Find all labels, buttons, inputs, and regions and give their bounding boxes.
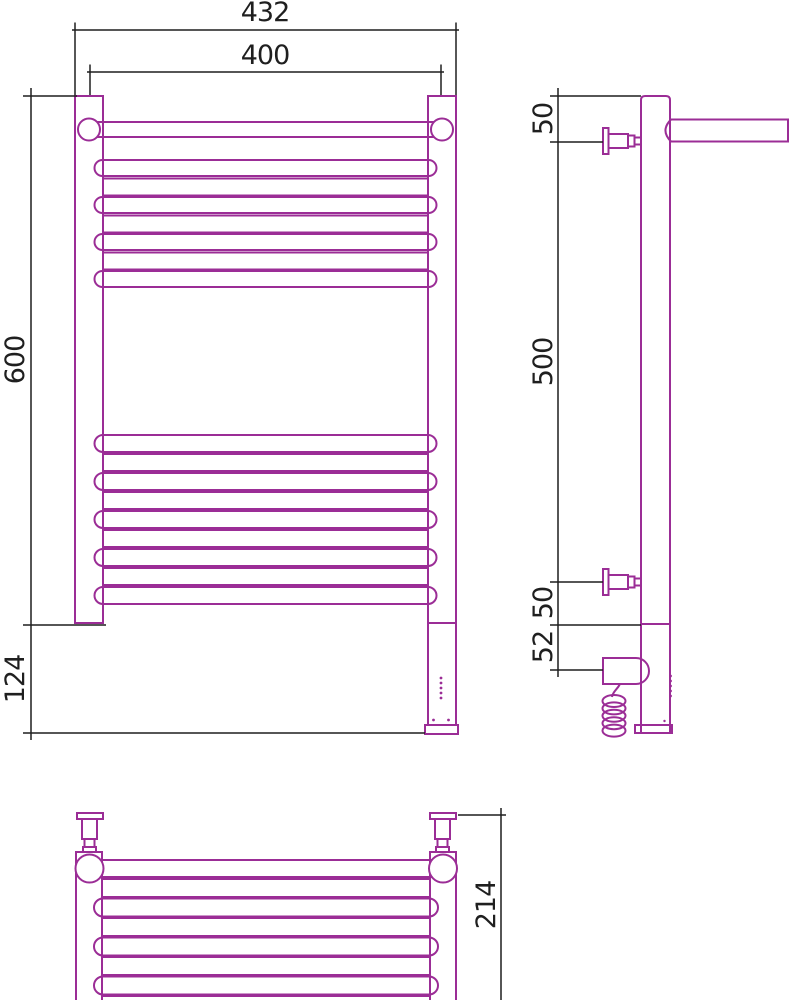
indicator-dot [440, 697, 443, 700]
side-view: 50 500 50 52 [528, 88, 788, 737]
mounting-fitting-circle [429, 855, 457, 883]
indicator-dot [669, 675, 672, 678]
bracket-neck [85, 839, 95, 847]
dim-label-heater-extension: 124 [0, 655, 31, 704]
heater-end-cap [425, 725, 458, 734]
wall-bracket-top-icon [430, 813, 456, 852]
technical-drawing: 432 400 600 124 [0, 0, 794, 1000]
crossbar-tube-front [95, 511, 437, 528]
bracket-screw [635, 579, 642, 586]
top-crossbar-tubes [94, 879, 438, 996]
control-dot [663, 720, 665, 722]
top-rail-side [670, 120, 788, 142]
mounting-fitting-circle [431, 119, 453, 141]
indicator-dot [669, 685, 672, 688]
heating-element-icon [603, 658, 649, 684]
dim-label-body-height: 600 [0, 336, 31, 385]
wall-bracket-top-icon [77, 813, 103, 852]
top-dimensions: 214 [458, 808, 506, 1000]
bracket-foot [83, 847, 96, 852]
bracket-foot [436, 847, 449, 852]
crossbar-tube-front [95, 160, 437, 176]
indicator-dot [669, 695, 672, 698]
heater-cartridge-section [428, 623, 456, 725]
crossbar-tube-front [94, 938, 438, 956]
bracket-barrel [82, 819, 97, 839]
cord-loop [603, 725, 626, 737]
control-dot [432, 719, 435, 722]
dim-label-rail-axis-width: 400 [241, 40, 290, 71]
crossbar-tube-front [95, 549, 437, 566]
crossbar-tube-front [95, 435, 437, 452]
dim-label-bracket-span: 500 [528, 338, 559, 387]
wall-bracket-icon [603, 569, 641, 595]
drawing-canvas: 432 400 600 124 [0, 0, 794, 1000]
mounting-fitting-circle [76, 855, 104, 883]
crossbar-tube-front [95, 234, 437, 250]
bracket-barrel [609, 575, 629, 589]
front-dimensions: 432 400 600 124 [0, 0, 459, 740]
top-rail-plan [98, 860, 435, 877]
indicator-dot [440, 687, 443, 690]
dim-label-top-bracket-offset: 50 [528, 103, 559, 135]
control-dot [447, 719, 450, 722]
crossbar-tube-front [94, 899, 438, 917]
indicator-dots [432, 677, 450, 722]
wall-bracket-icon [603, 128, 641, 154]
top-view: 214 [76, 808, 507, 1000]
dim-label-depth: 214 [471, 881, 502, 930]
indicator-dot [440, 692, 443, 695]
indicator-dot [440, 682, 443, 685]
crossbar-tube-front [95, 197, 437, 213]
indicator-dot [440, 677, 443, 680]
bracket-barrel [609, 134, 629, 148]
dim-label-bottom-bracket-offset: 50 [528, 587, 559, 619]
indicator-dot [669, 680, 672, 683]
mounting-fitting-circle [78, 119, 100, 141]
indicator-dot [669, 690, 672, 693]
riser-tube [641, 96, 670, 733]
front-view: 432 400 600 124 [0, 0, 459, 740]
crossbar-tube-front [95, 271, 437, 287]
dim-label-overall-width: 432 [241, 0, 290, 28]
dim-label-heater-offset: 52 [528, 631, 559, 663]
bracket-barrel [435, 819, 450, 839]
top-rail [98, 122, 434, 137]
bracket-neck [438, 839, 448, 847]
power-cord-coil-icon [603, 695, 626, 737]
crossbar-tube-front [95, 473, 437, 490]
crossbar-tube-front [94, 977, 438, 995]
bracket-screw [635, 138, 642, 145]
front-crossbar-tubes [95, 160, 437, 604]
crossbar-tube-front [95, 587, 437, 604]
